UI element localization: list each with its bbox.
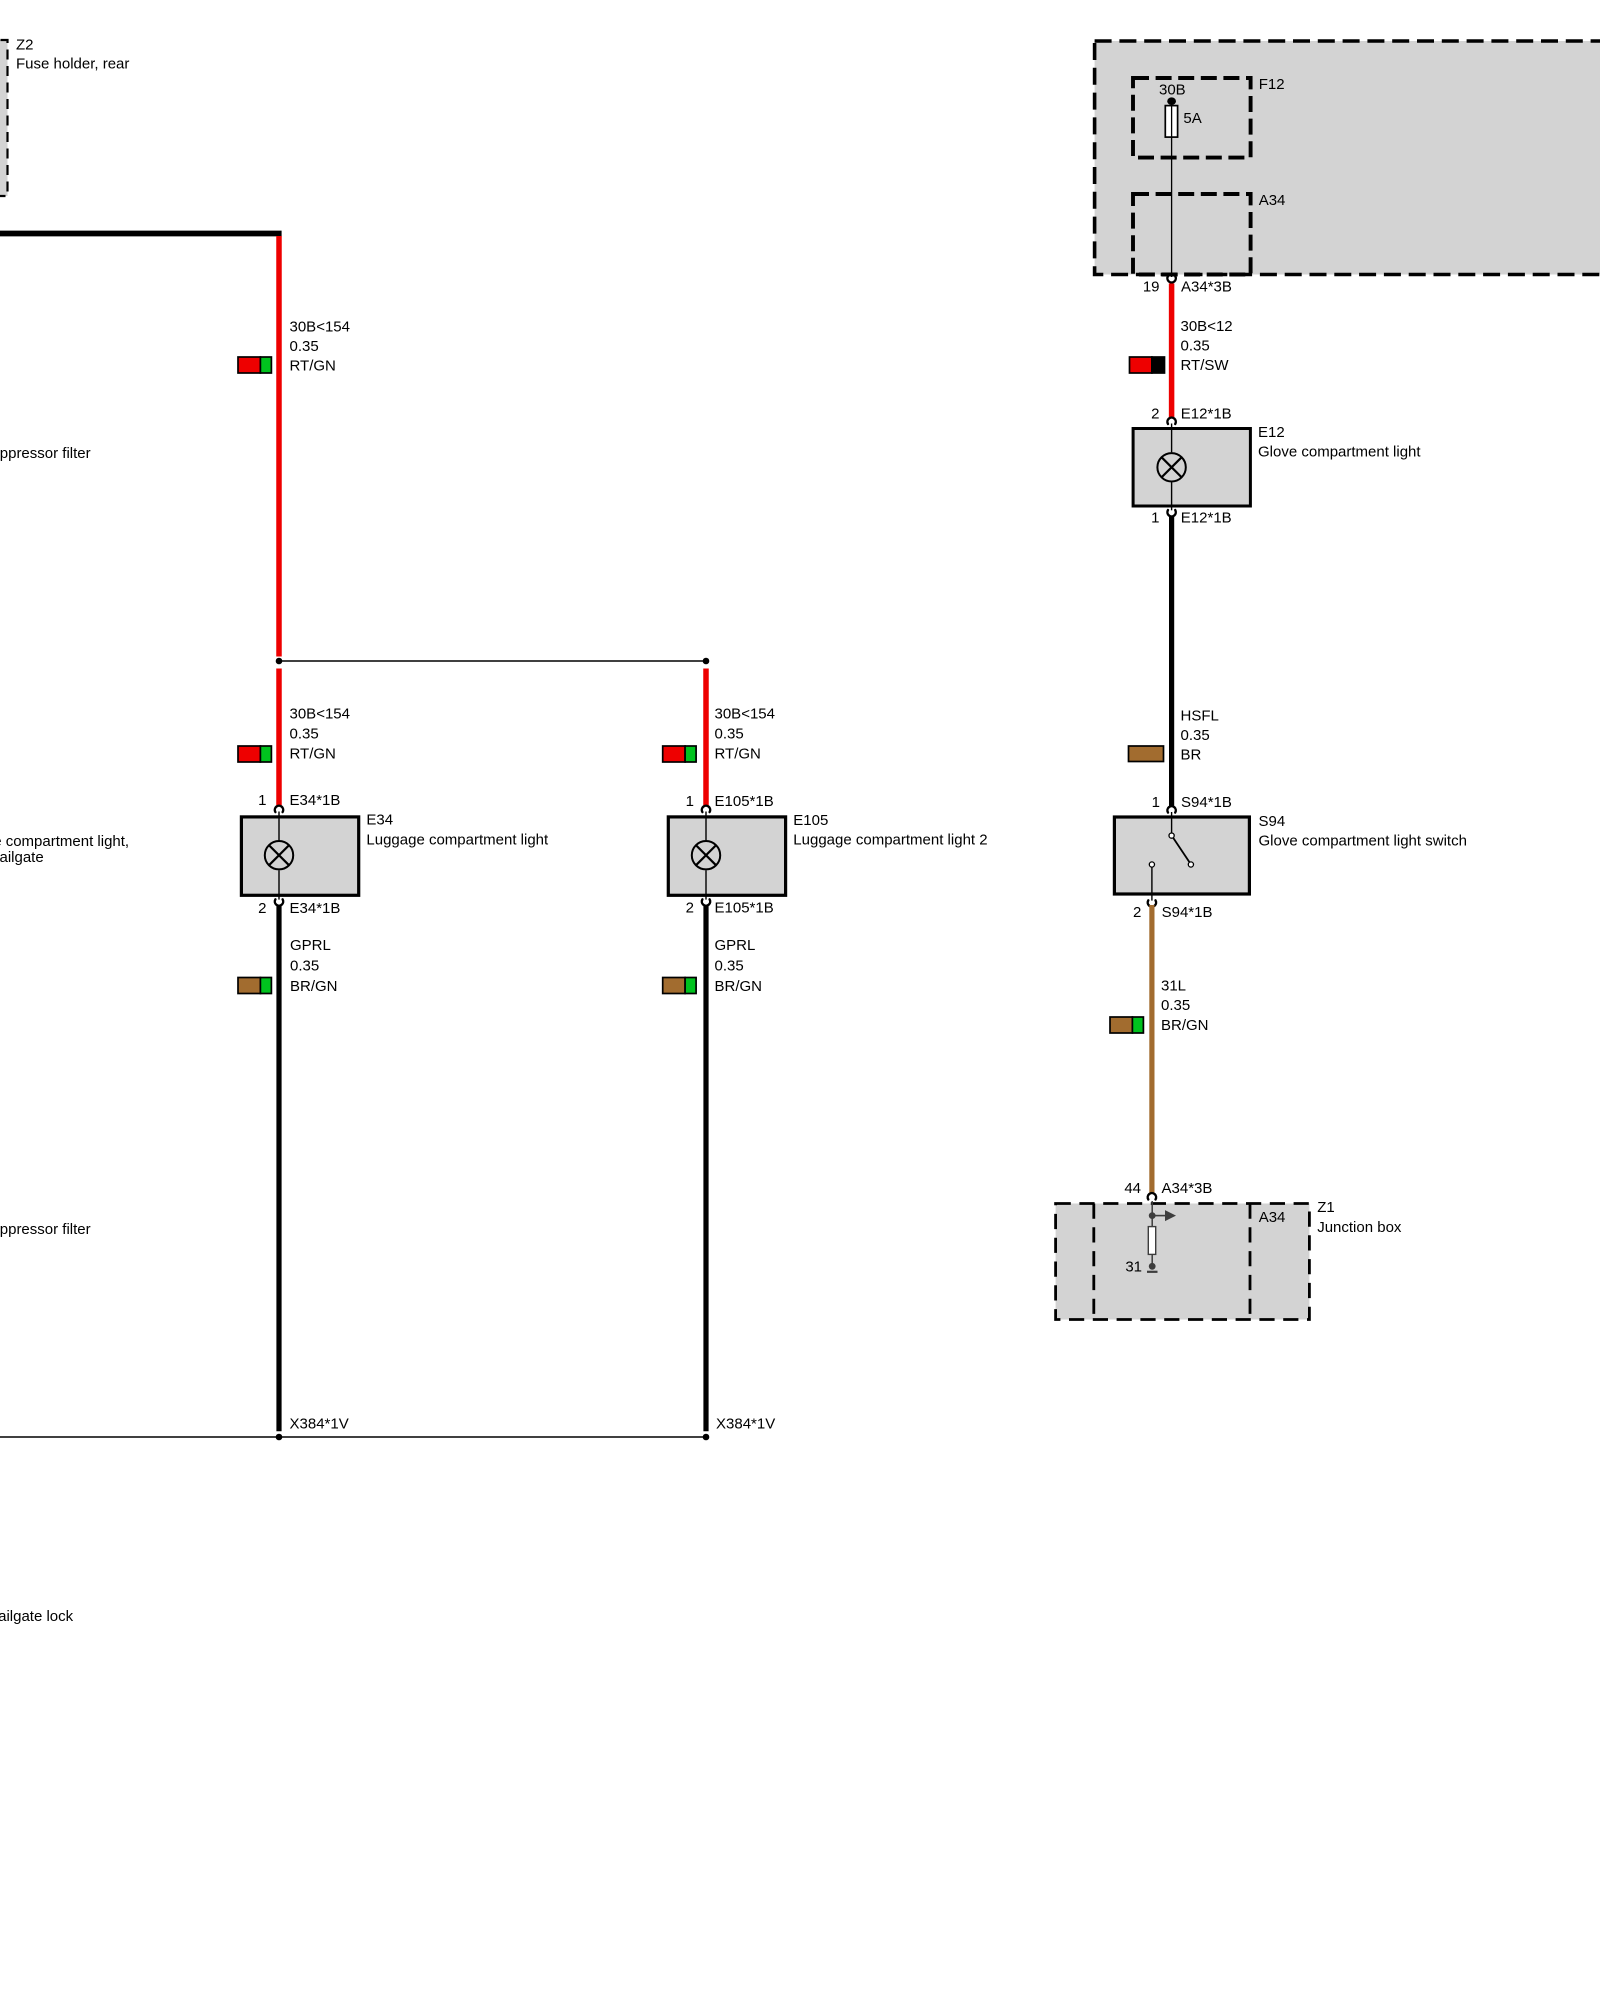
svg-text:Luggage compartment light 2: Luggage compartment light 2: [793, 832, 987, 849]
svg-text:S94: S94: [1259, 813, 1286, 830]
svg-text:GPRL: GPRL: [290, 937, 331, 954]
svg-text:0.35: 0.35: [1161, 997, 1190, 1014]
svg-text:Suppressor filter: Suppressor filter: [0, 1221, 91, 1238]
svg-text:2: 2: [1151, 405, 1159, 422]
svg-text:30B: 30B: [1159, 82, 1186, 99]
svg-text:0.35: 0.35: [290, 338, 319, 355]
svg-text:30B<154: 30B<154: [290, 706, 350, 723]
svg-text:E105: E105: [793, 812, 828, 829]
svg-text:E105*1B: E105*1B: [715, 793, 774, 810]
svg-text:Glove compartment light: Glove compartment light: [1258, 444, 1421, 461]
svg-text:2: 2: [258, 900, 266, 917]
svg-text:E34: E34: [366, 812, 393, 829]
svg-text:Fuse holder, rear: Fuse holder, rear: [16, 56, 129, 73]
svg-text:Z2: Z2: [16, 37, 34, 54]
svg-text:X384*1V: X384*1V: [290, 1416, 349, 1433]
svg-text:E105*1B: E105*1B: [715, 900, 774, 917]
svg-text:19: 19: [1143, 279, 1160, 296]
svg-text:31: 31: [1125, 1259, 1142, 1276]
svg-text:A34: A34: [1259, 192, 1286, 209]
svg-text:31L: 31L: [1161, 978, 1186, 995]
svg-text:X384*1V: X384*1V: [716, 1416, 775, 1433]
svg-text:HSFL: HSFL: [1181, 708, 1219, 725]
svg-text:1: 1: [686, 793, 694, 810]
svg-text:44: 44: [1124, 1180, 1141, 1197]
svg-text:0.35: 0.35: [290, 958, 319, 975]
svg-text:RT/GN: RT/GN: [290, 358, 336, 375]
svg-text:30B<154: 30B<154: [715, 706, 775, 723]
svg-text:E34*1B: E34*1B: [290, 792, 341, 809]
svg-text:BR/GN: BR/GN: [1161, 1017, 1209, 1034]
svg-text:Glove compartment light switch: Glove compartment light switch: [1259, 833, 1467, 850]
svg-text:E34*1B: E34*1B: [290, 900, 341, 917]
svg-text:A34: A34: [1259, 1209, 1286, 1226]
svg-text:BR/GN: BR/GN: [290, 978, 338, 995]
svg-text:RT/GN: RT/GN: [290, 746, 336, 763]
svg-text:0.35: 0.35: [715, 726, 744, 743]
svg-text:F12: F12: [1259, 76, 1285, 93]
svg-text:2: 2: [1133, 904, 1141, 921]
svg-text:30B<12: 30B<12: [1181, 318, 1233, 335]
svg-text:1: 1: [1151, 509, 1159, 526]
svg-text:E12*1B: E12*1B: [1181, 509, 1232, 526]
svg-text:e compartment light,: e compartment light,: [0, 833, 129, 850]
svg-text:0.35: 0.35: [1181, 727, 1210, 744]
svg-text:A34*3B: A34*3B: [1162, 1180, 1213, 1197]
svg-text:Suppressor filter: Suppressor filter: [0, 445, 91, 462]
svg-text:S94*1B: S94*1B: [1162, 904, 1213, 921]
svg-text:0.35: 0.35: [715, 958, 744, 975]
svg-text:E12*1B: E12*1B: [1181, 405, 1232, 422]
svg-text:E12: E12: [1258, 424, 1285, 441]
svg-text:Luggage compartment light: Luggage compartment light: [366, 832, 549, 849]
svg-text:RT/SW: RT/SW: [1181, 357, 1230, 374]
svg-text:1: 1: [258, 792, 266, 809]
svg-text:0.35: 0.35: [1181, 338, 1210, 355]
svg-text:GPRL: GPRL: [715, 937, 756, 954]
svg-text:Junction box: Junction box: [1317, 1219, 1402, 1236]
svg-text:BR: BR: [1181, 747, 1202, 764]
svg-text:Z1: Z1: [1317, 1199, 1335, 1216]
svg-text:1: 1: [1152, 794, 1160, 811]
svg-text:tailgate: tailgate: [0, 849, 44, 866]
svg-text:S94*1B: S94*1B: [1181, 794, 1232, 811]
svg-text:Tailgate lock: Tailgate lock: [0, 1608, 74, 1625]
svg-text:BR/GN: BR/GN: [715, 978, 763, 995]
svg-text:RT/GN: RT/GN: [715, 746, 761, 763]
svg-text:A34*3B: A34*3B: [1181, 279, 1232, 296]
svg-text:2: 2: [686, 900, 694, 917]
svg-text:30B<154: 30B<154: [290, 319, 350, 336]
svg-text:5A: 5A: [1183, 110, 1201, 127]
svg-text:0.35: 0.35: [290, 726, 319, 743]
